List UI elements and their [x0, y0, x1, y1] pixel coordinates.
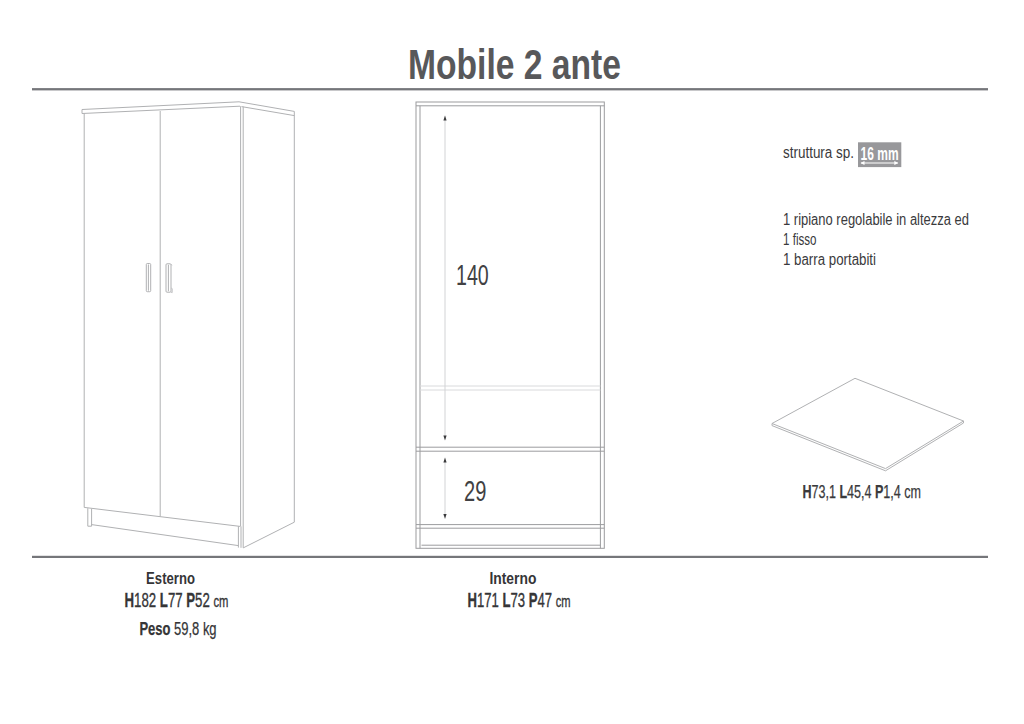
svg-text:struttura sp.: struttura sp.	[783, 144, 854, 161]
svg-text:1 fisso: 1 fisso	[783, 231, 817, 248]
svg-text:1 ripiano regolabile in altezz: 1 ripiano regolabile in altezza ed	[783, 211, 969, 228]
svg-text:Esterno: Esterno	[146, 569, 195, 587]
svg-text:16 mm: 16 mm	[861, 143, 899, 164]
svg-text:1 barra portabiti: 1 barra portabiti	[783, 251, 876, 268]
svg-text:H73,1 L45,4 P1,4 cm: H73,1 L45,4 P1,4 cm	[803, 482, 921, 502]
svg-text:Peso 59,8 kg: Peso 59,8 kg	[139, 618, 216, 639]
svg-text:Mobile 2 ante: Mobile 2 ante	[408, 41, 621, 88]
svg-text:140: 140	[456, 259, 489, 291]
svg-text:29: 29	[464, 475, 486, 507]
svg-text:Interno: Interno	[489, 569, 536, 587]
svg-text:H182 L77 P52 cm: H182 L77 P52 cm	[125, 589, 229, 611]
svg-text:H171 L73 P47 cm: H171 L73 P47 cm	[467, 589, 570, 611]
